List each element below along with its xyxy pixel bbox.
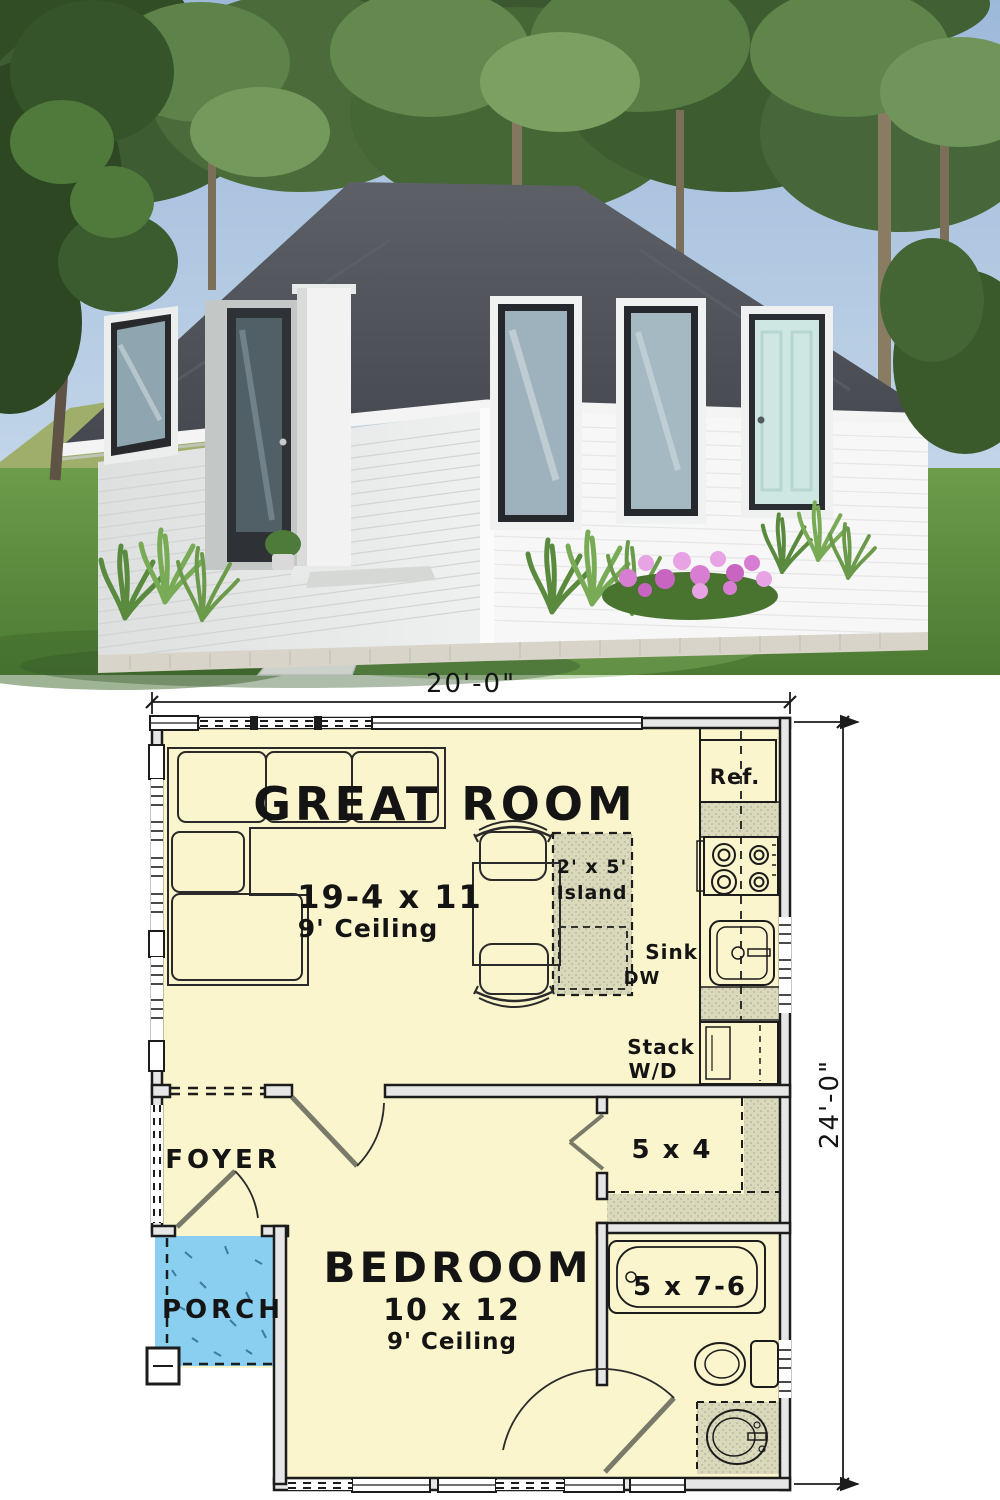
bedroom-label: BEDROOM bbox=[323, 1243, 592, 1292]
laundry-label-line1: Stack bbox=[627, 1035, 695, 1059]
bedroom-ceiling: 9' Ceiling bbox=[387, 1329, 517, 1355]
teal-door bbox=[741, 306, 833, 518]
front-window-1 bbox=[490, 296, 582, 530]
foyer-label: FOYER bbox=[165, 1145, 281, 1175]
window bbox=[149, 745, 164, 779]
great-room-size: 19-4 x 11 bbox=[297, 878, 483, 916]
side-window bbox=[104, 306, 178, 465]
porch-label: PORCH bbox=[162, 1295, 284, 1325]
front-window-2 bbox=[616, 298, 706, 524]
house-rendering bbox=[0, 0, 1000, 690]
floor-plan: 20'-0" 24'-0" GREAT ROOM 19-4 x 11 9' Ce… bbox=[146, 669, 858, 1498]
potted-plant bbox=[265, 530, 301, 558]
width-dimension-label: 20'-0" bbox=[426, 669, 516, 699]
closet-size-label: 5 x 4 bbox=[631, 1135, 712, 1165]
dw-label: DW bbox=[624, 968, 661, 989]
great-room-label: GREAT ROOM bbox=[253, 777, 636, 831]
tub-size-label: 5 x 7-6 bbox=[633, 1272, 747, 1302]
bedroom-size: 10 x 12 bbox=[383, 1293, 521, 1328]
window bbox=[149, 931, 164, 957]
height-dimension-label: 24'-0" bbox=[815, 1059, 845, 1149]
fridge-label: Ref. bbox=[710, 765, 760, 789]
island-label: Island bbox=[557, 882, 628, 904]
pin-image: 20'-0" 24'-0" GREAT ROOM 19-4 x 11 9' Ce… bbox=[0, 0, 1000, 1500]
great-room-ceiling: 9' Ceiling bbox=[298, 914, 438, 943]
composite-graphic: 20'-0" 24'-0" GREAT ROOM 19-4 x 11 9' Ce… bbox=[0, 0, 1000, 1500]
laundry-label-line2: W/D bbox=[629, 1059, 678, 1083]
door-handle bbox=[280, 439, 287, 446]
window bbox=[149, 1041, 164, 1071]
island-size-label: 2' x 5' bbox=[557, 856, 628, 878]
teal-door-handle bbox=[758, 417, 765, 424]
sink-label: Sink bbox=[645, 940, 698, 964]
